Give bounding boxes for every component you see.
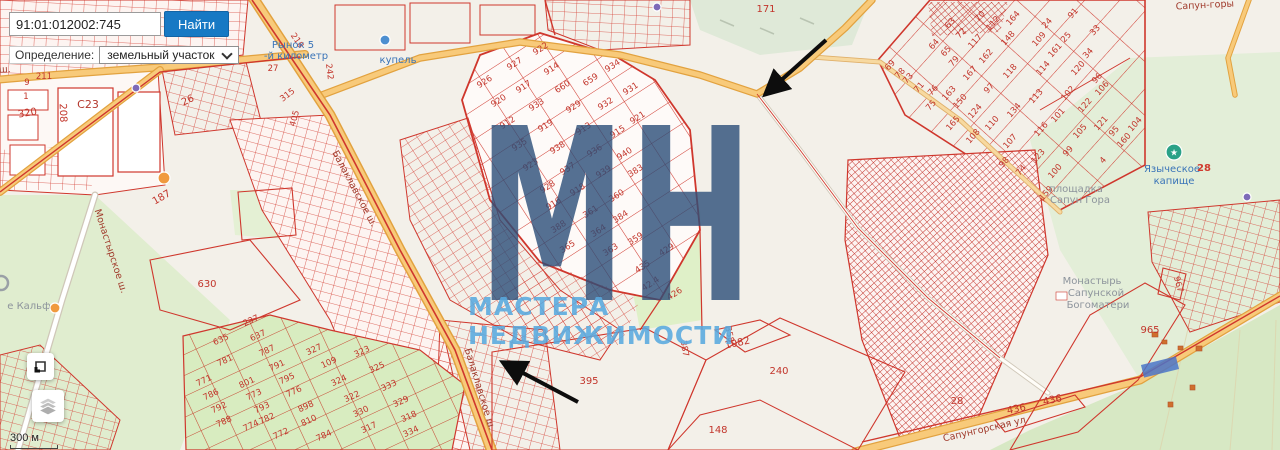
svg-text:211: 211	[36, 72, 52, 82]
definition-select-value: земельный участок	[107, 48, 214, 62]
cadastral-number-input[interactable]	[9, 12, 161, 36]
svg-text:1: 1	[23, 92, 28, 102]
svg-text:242: 242	[323, 63, 335, 80]
svg-text:Монастырь: Монастырь	[1063, 276, 1122, 287]
svg-text:171: 171	[756, 4, 775, 15]
svg-text:Языческое: Языческое	[1144, 164, 1200, 175]
svg-text:-й километр: -й километр	[264, 51, 328, 62]
definition-bar: Определение: земельный участок	[9, 46, 239, 64]
svg-text:28: 28	[951, 396, 964, 407]
svg-text:е Кальфа: е Кальфа	[7, 301, 57, 312]
svg-text:Рынок 5: Рынок 5	[272, 40, 314, 51]
extent-button[interactable]	[27, 353, 54, 380]
svg-text:965: 965	[1140, 325, 1159, 336]
svg-text:27: 27	[268, 64, 279, 74]
svg-text:240: 240	[769, 366, 788, 377]
scale-indicator: 300 м	[10, 432, 58, 449]
chevron-down-icon	[221, 48, 232, 59]
star-glyph: ★	[1170, 149, 1178, 159]
search-bar: Найти	[9, 11, 229, 37]
poi-marker-orange-icon	[158, 172, 170, 184]
find-button[interactable]: Найти	[164, 11, 229, 37]
layers-icon	[38, 397, 58, 416]
poi-marker-blue-icon	[380, 35, 390, 45]
svg-text:630: 630	[197, 279, 216, 290]
svg-text:С23: С23	[77, 98, 99, 111]
svg-text:9: 9	[24, 78, 29, 88]
poi-marker-purple-icon	[132, 84, 140, 92]
poi-marker-purple-icon	[653, 3, 661, 11]
svg-text:площадка: площадка	[1049, 184, 1103, 195]
svg-text:капище: капище	[1154, 176, 1195, 187]
svg-text:28: 28	[1197, 163, 1211, 174]
layers-button[interactable]	[32, 390, 64, 422]
poi-marker-orange-icon	[50, 303, 60, 313]
definition-select[interactable]: земельный участок	[99, 46, 238, 64]
map-canvas[interactable]: Камышовое ш.Балаклавское ш.Балаклавское …	[0, 0, 1280, 450]
cadastral-map-app: Камышовое ш.Балаклавское ш.Балаклавское …	[0, 0, 1280, 450]
svg-text:Богоматери: Богоматери	[1067, 300, 1130, 311]
extent-icon	[33, 359, 48, 374]
svg-text:395: 395	[579, 376, 598, 387]
svg-text:Сапун Гора: Сапун Гора	[1050, 195, 1110, 206]
svg-text:208: 208	[57, 103, 69, 122]
scale-bar	[10, 445, 58, 449]
svg-text:купель: купель	[380, 55, 417, 66]
scale-label: 300 м	[10, 432, 39, 444]
svg-text:148: 148	[708, 425, 727, 436]
definition-label: Определение:	[9, 46, 99, 64]
poi-marker-purple-icon	[1243, 193, 1251, 201]
svg-text:Сапунской: Сапунской	[1068, 288, 1124, 299]
